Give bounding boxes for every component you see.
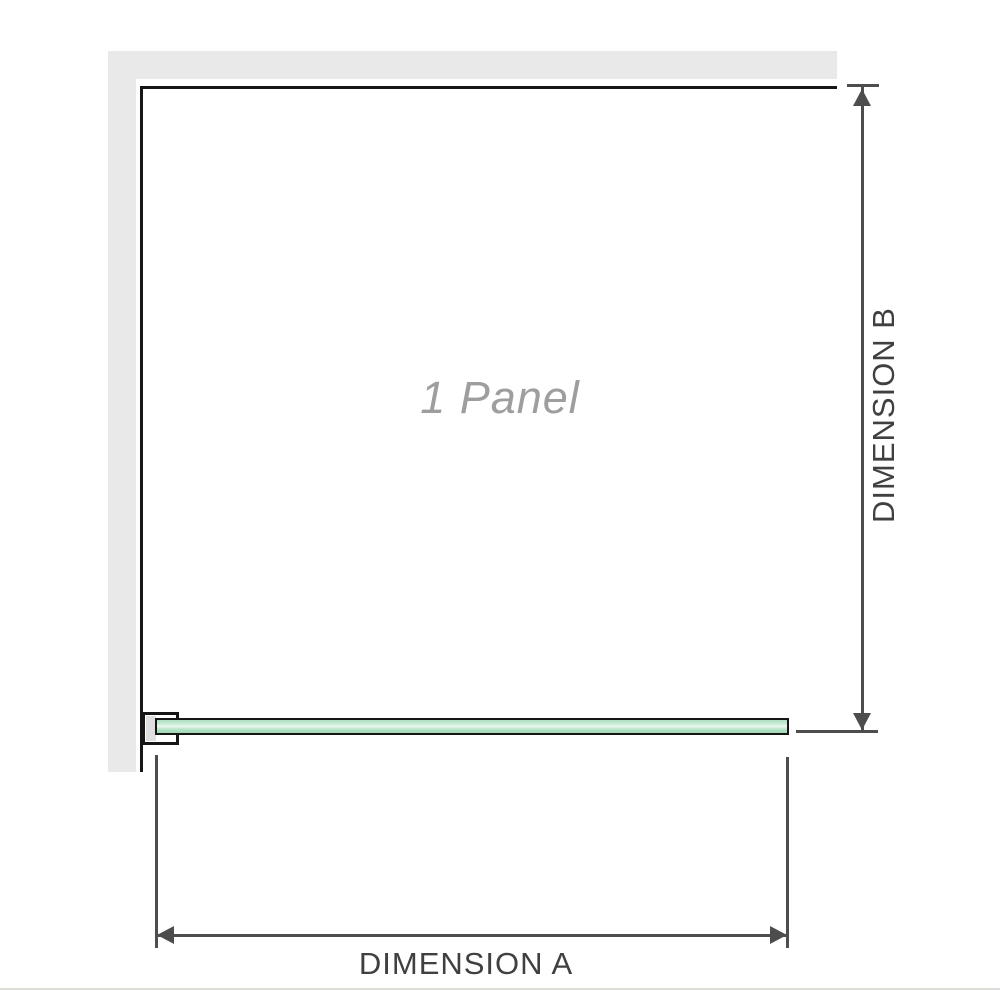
dimension-a-arrow-left-icon — [157, 926, 174, 944]
panel-top-edge — [140, 86, 837, 89]
wall-top-segment — [108, 51, 837, 79]
dimension-b-arrow-up-icon — [853, 89, 871, 106]
dimension-a-extension-left — [155, 755, 158, 948]
dimension-a-label: DIMENSION A — [359, 946, 573, 982]
dimension-a-arrow-right-icon — [770, 926, 787, 944]
glass-panel-bar — [155, 718, 789, 735]
wall-left-segment — [108, 51, 136, 772]
dimension-a-extension-right — [786, 757, 789, 948]
panel-left-edge — [140, 86, 143, 772]
panel-label: 1 Panel — [420, 372, 580, 424]
dimension-a-line — [157, 934, 788, 937]
dimension-b-label: DIMENSION B — [866, 307, 902, 523]
dimension-b-arrow-down-icon — [853, 713, 871, 730]
dimension-b-line — [861, 87, 864, 731]
floor-baseline — [0, 988, 1000, 990]
dimension-b-tick-bottom — [796, 730, 878, 733]
dimension-diagram: 1 Panel DIMENSION B DIMENSION A — [0, 0, 1000, 1000]
